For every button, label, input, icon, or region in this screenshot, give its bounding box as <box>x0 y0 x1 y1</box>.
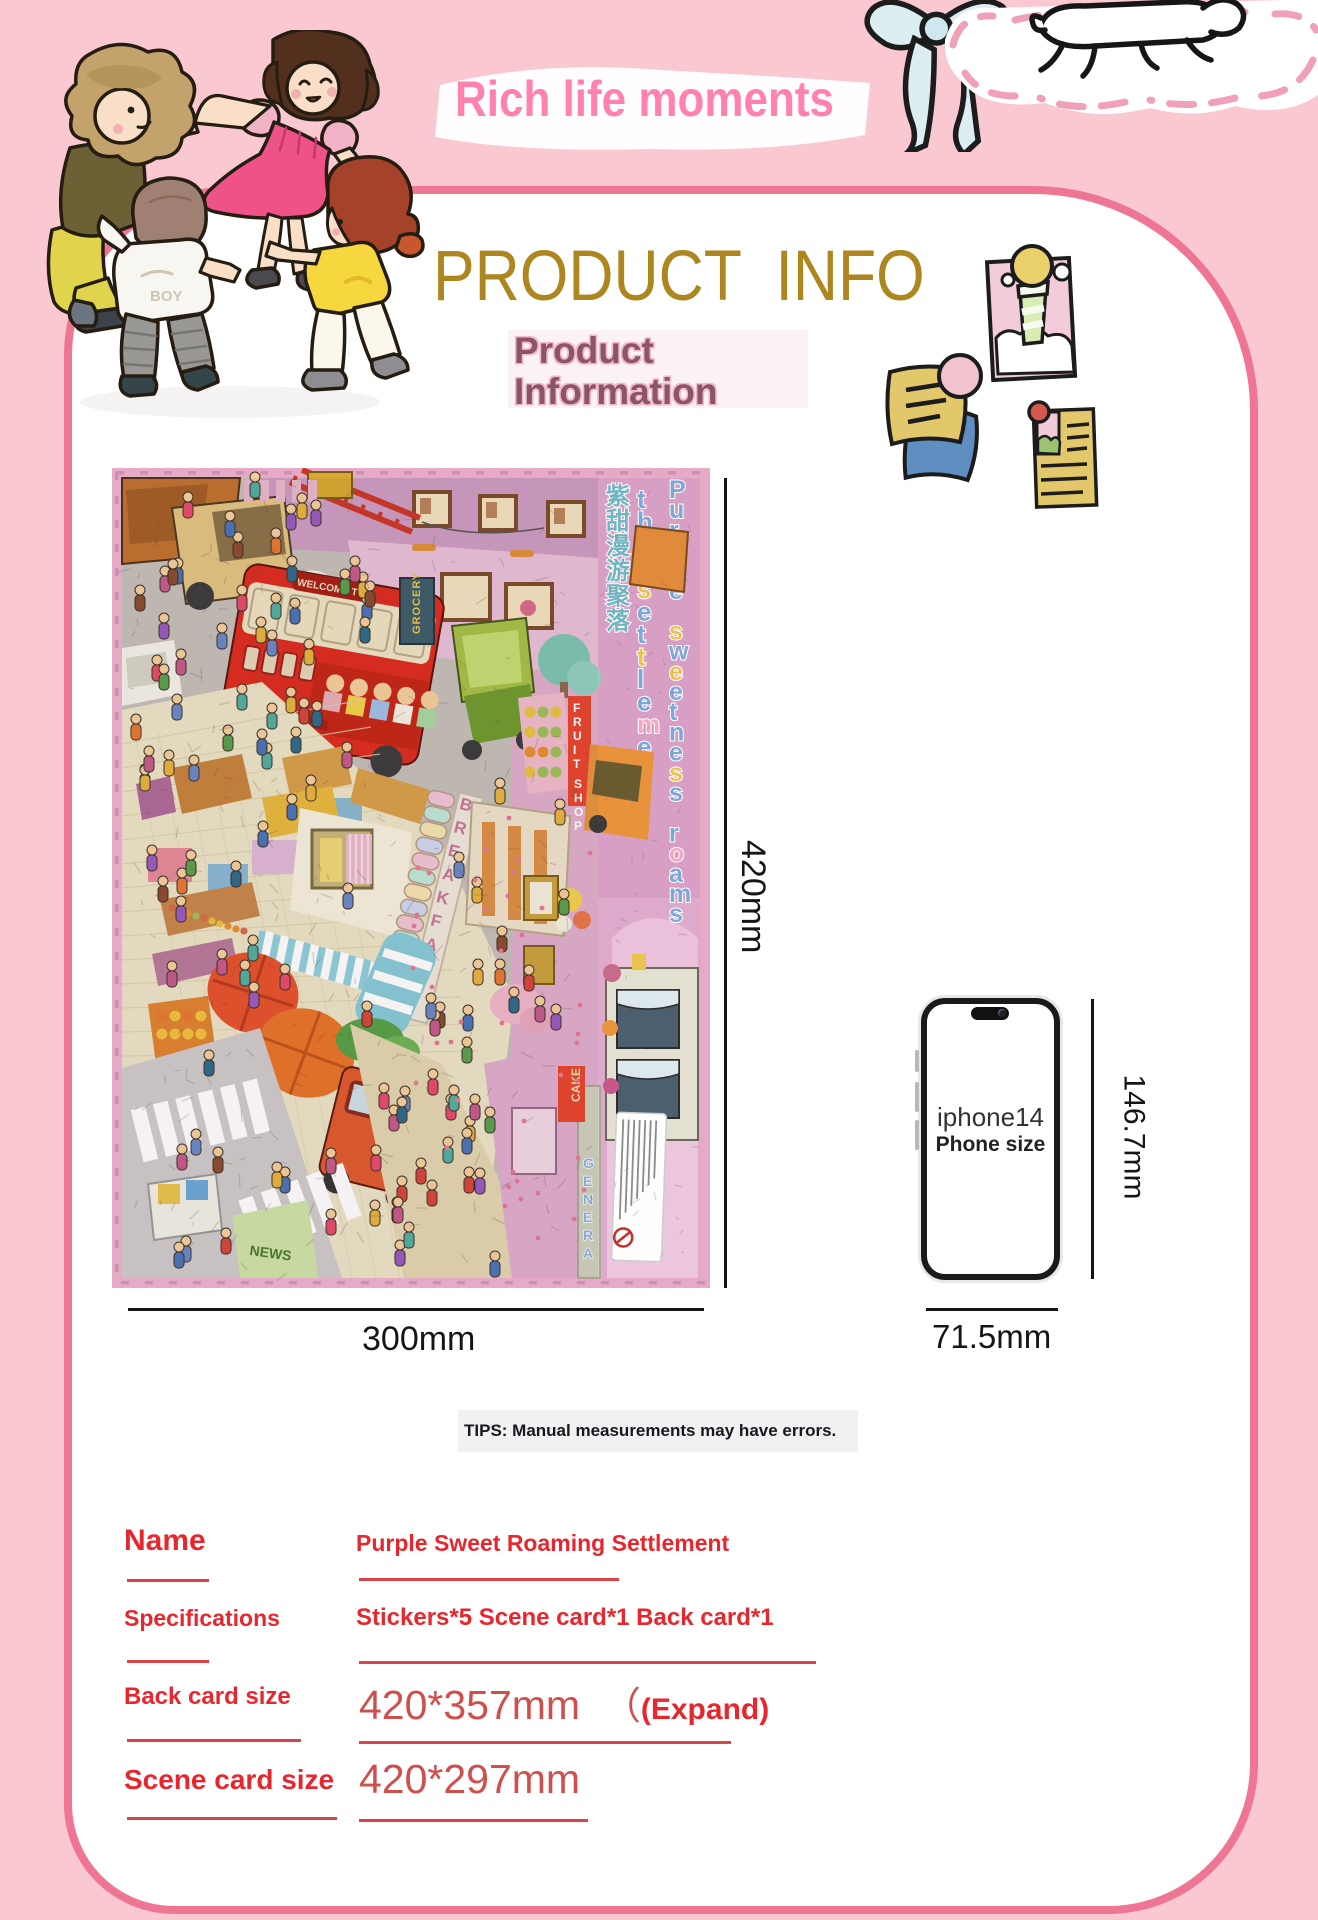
svg-text:BOY: BOY <box>150 288 183 305</box>
svg-text:游: 游 <box>606 557 630 585</box>
svg-text:聚: 聚 <box>605 583 631 610</box>
svg-text:甜: 甜 <box>606 508 630 535</box>
svg-text:落: 落 <box>606 608 631 635</box>
svg-text:紫: 紫 <box>606 483 630 510</box>
svg-text:漫: 漫 <box>606 533 630 560</box>
svg-text:s: s <box>669 900 683 928</box>
svg-text:s: s <box>669 779 683 807</box>
